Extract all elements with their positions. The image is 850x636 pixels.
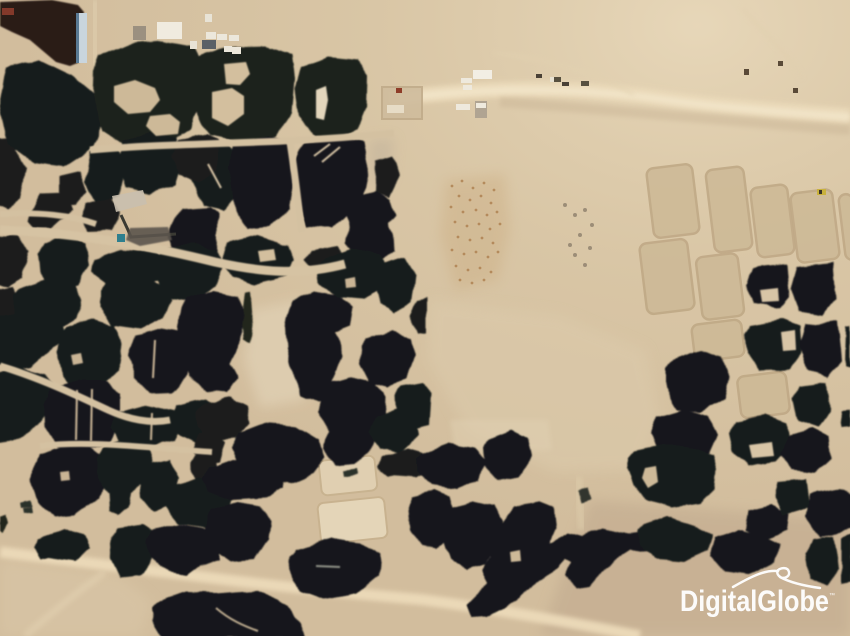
svg-text:™: ™ <box>829 592 835 599</box>
svg-text:DigitalGlobe: DigitalGlobe <box>680 585 829 618</box>
